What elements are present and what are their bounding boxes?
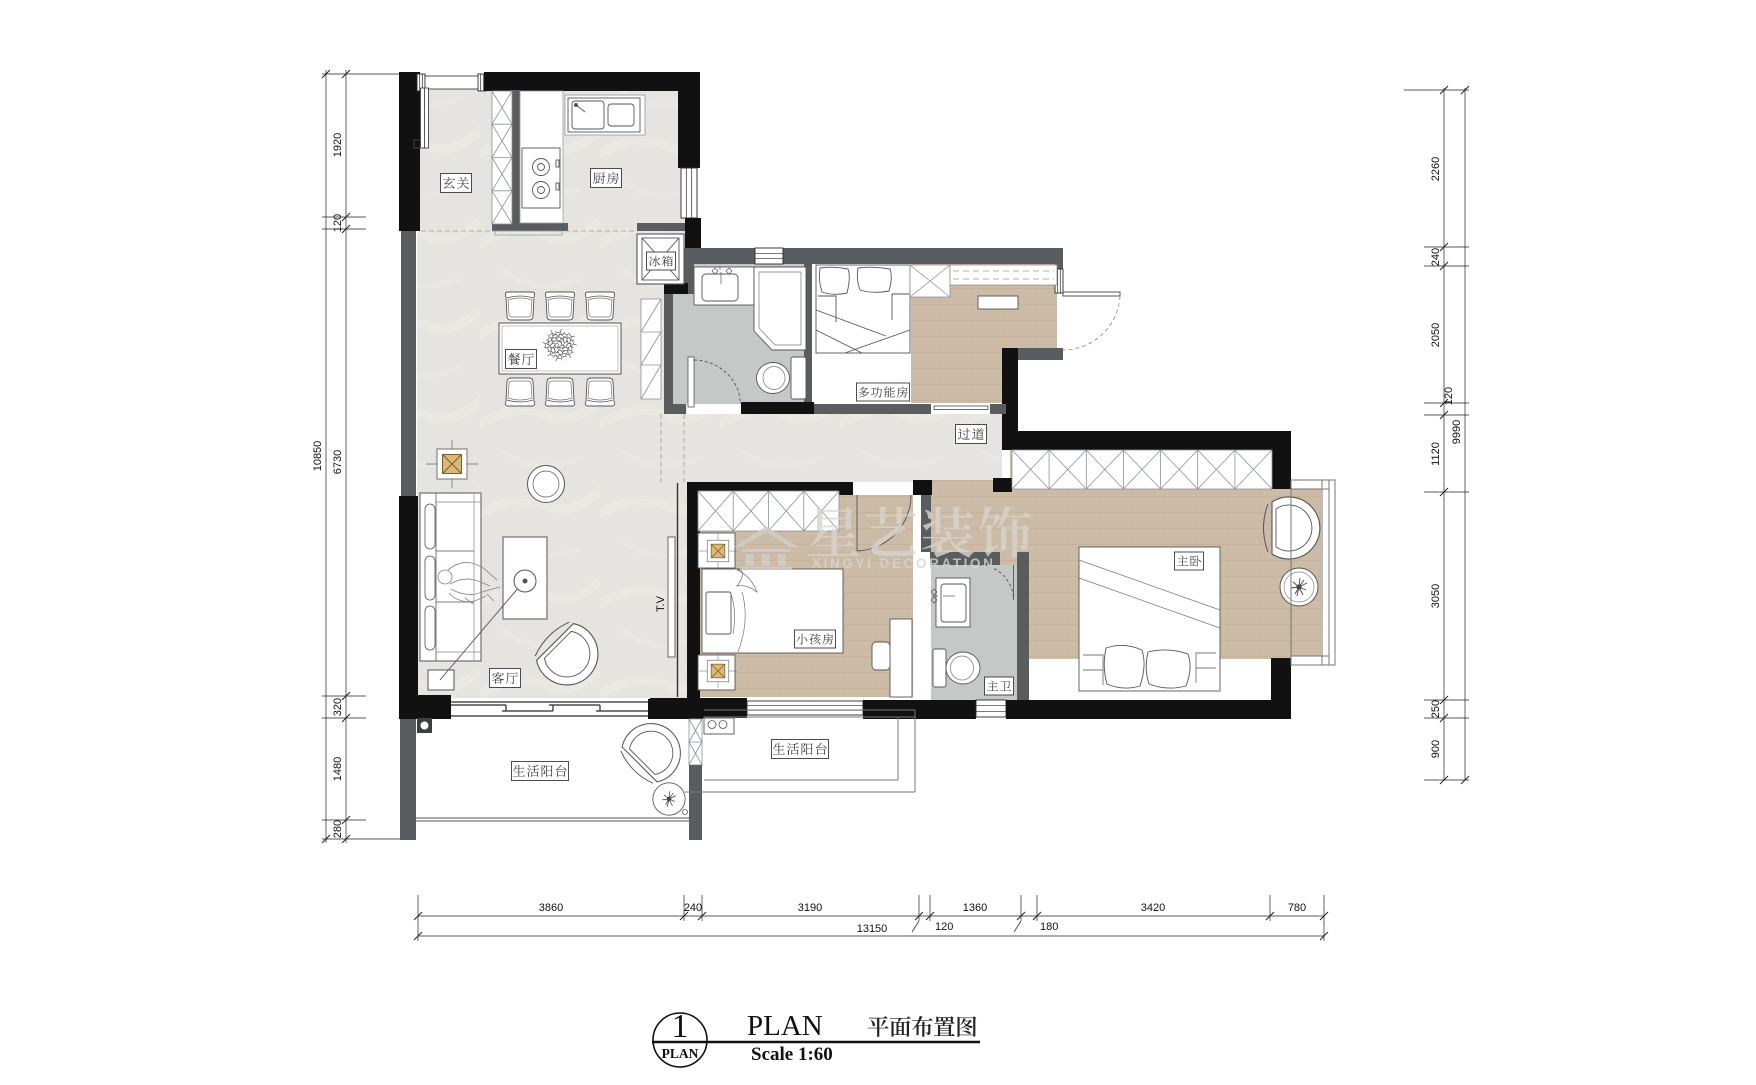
svg-text:13150: 13150 — [857, 923, 888, 935]
svg-text:3050: 3050 — [1430, 584, 1442, 608]
svg-text:180: 180 — [1040, 921, 1058, 933]
svg-text:XINGYI DECORATION: XINGYI DECORATION — [812, 556, 995, 571]
svg-text:1920: 1920 — [332, 133, 344, 157]
svg-text:120: 120 — [935, 921, 953, 933]
svg-text:280: 280 — [332, 820, 344, 838]
svg-text:Scale 1:60: Scale 1:60 — [751, 1044, 833, 1065]
svg-text:3860: 3860 — [539, 902, 563, 914]
svg-text:1120: 1120 — [1430, 442, 1442, 466]
svg-text:3420: 3420 — [1141, 902, 1165, 914]
svg-text:2050: 2050 — [1430, 323, 1442, 347]
svg-text:1360: 1360 — [963, 902, 987, 914]
svg-text:240: 240 — [684, 902, 702, 914]
svg-text:PLAN: PLAN — [662, 1046, 699, 1061]
svg-text:1480: 1480 — [332, 757, 344, 781]
svg-text:120: 120 — [1443, 387, 1455, 405]
svg-text:PLAN: PLAN — [747, 1010, 823, 1042]
svg-text:120: 120 — [332, 214, 344, 232]
svg-text:900: 900 — [1430, 740, 1442, 758]
svg-text:9990: 9990 — [1451, 420, 1463, 444]
svg-text:10850: 10850 — [312, 441, 324, 472]
svg-text:3190: 3190 — [798, 902, 822, 914]
svg-text:240: 240 — [1430, 248, 1442, 266]
svg-text:320: 320 — [332, 698, 344, 716]
svg-text:2260: 2260 — [1430, 157, 1442, 181]
svg-text:6730: 6730 — [332, 450, 344, 474]
svg-text:T.V: T.V — [655, 595, 667, 612]
svg-text:1: 1 — [672, 1008, 689, 1045]
svg-text:250: 250 — [1430, 700, 1442, 718]
svg-text:780: 780 — [1288, 902, 1306, 914]
